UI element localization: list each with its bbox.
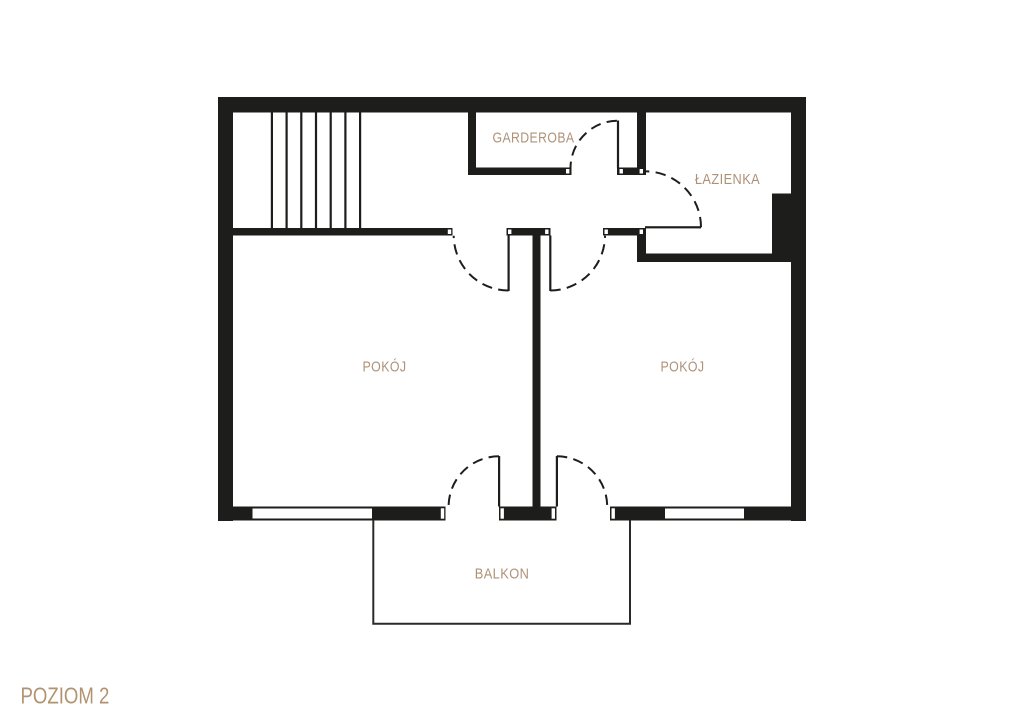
svg-text:BALKON: BALKON [475,565,530,582]
svg-text:POZIOM 2: POZIOM 2 [21,684,110,709]
svg-text:ŁAZIENKA: ŁAZIENKA [695,170,760,187]
svg-text:POKÓJ: POKÓJ [362,357,406,374]
svg-text:GARDEROBA: GARDEROBA [492,129,574,145]
svg-text:POKÓJ: POKÓJ [660,357,704,374]
